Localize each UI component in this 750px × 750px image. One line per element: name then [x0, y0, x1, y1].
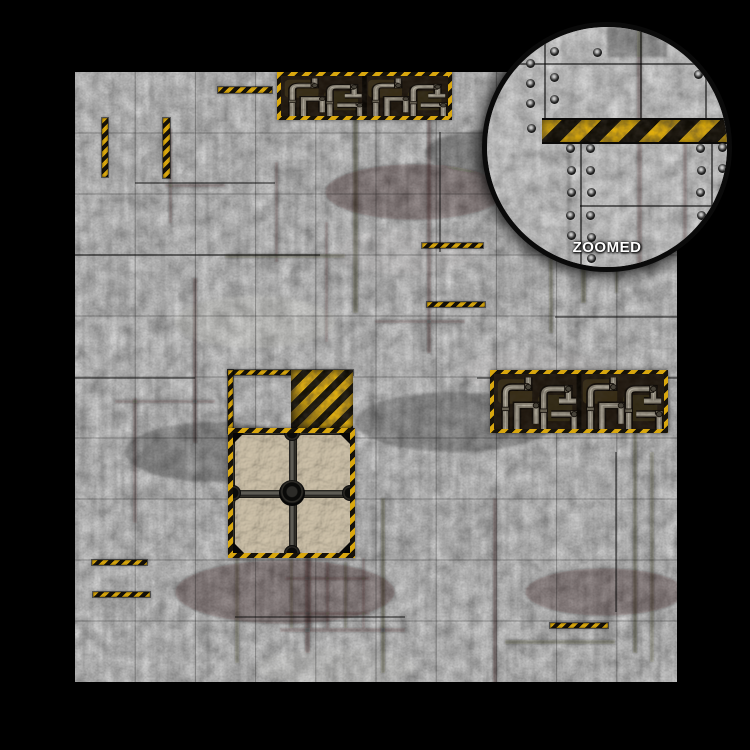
- rivet-icon: [716, 51, 725, 60]
- hazard-chevron-plate: [291, 370, 353, 433]
- rivet-icon: [527, 124, 536, 133]
- plate-seam: [487, 63, 727, 65]
- plate-seam: [705, 27, 707, 118]
- hazard-strip: [92, 560, 147, 565]
- rivet-icon: [550, 95, 559, 104]
- rivet-icon: [526, 59, 535, 68]
- rivet-icon: [696, 144, 705, 153]
- supply-crate: [228, 428, 355, 558]
- crate-corner: [339, 433, 350, 444]
- rivet-icon: [586, 144, 595, 153]
- rivet-icon: [567, 166, 576, 175]
- rivet-icon: [526, 99, 535, 108]
- product-photo: ZOOMED: [0, 0, 750, 750]
- rivet-icon: [697, 211, 706, 220]
- hazard-strip: [228, 370, 233, 433]
- rivet-icon: [550, 73, 559, 82]
- pipe-panel-interior: [281, 76, 448, 116]
- hazard-band: [542, 118, 727, 144]
- rivet-icon: [586, 211, 595, 220]
- rivet-icon: [587, 188, 596, 197]
- rivet-icon: [566, 144, 575, 153]
- hazard-strip: [163, 118, 170, 178]
- hazard-strip: [93, 592, 150, 597]
- rivet-icon: [526, 79, 535, 88]
- hazard-strip: [550, 623, 608, 628]
- rivet-icon: [550, 47, 559, 56]
- zoom-inset: ZOOMED: [482, 22, 732, 272]
- rivet-icon: [696, 188, 705, 197]
- pipe-panel-interior: [494, 374, 664, 429]
- rivet-icon: [567, 188, 576, 197]
- hazard-strip: [427, 302, 485, 307]
- rivet-icon: [697, 166, 706, 175]
- rivet-icon: [586, 166, 595, 175]
- zoom-label: ZOOMED: [487, 239, 727, 256]
- rivet-icon: [718, 143, 727, 152]
- crate-corner: [339, 542, 350, 553]
- plate-seam: [544, 27, 546, 118]
- hazard-strip: [422, 243, 483, 248]
- rivet-icon: [593, 48, 602, 57]
- crate-corner: [233, 433, 244, 444]
- rivet-icon: [566, 211, 575, 220]
- rivet-icon: [715, 75, 724, 84]
- pipe-conduit-panel-right: [490, 370, 668, 433]
- rivet-icon: [694, 70, 703, 79]
- crate-corner: [233, 542, 244, 553]
- rivet-icon: [693, 47, 702, 56]
- rivet-icon: [719, 188, 728, 197]
- crate-center-hub: [279, 480, 305, 506]
- rivet-icon: [718, 164, 727, 173]
- plate-seam: [580, 205, 727, 207]
- plate-seam: [640, 27, 642, 118]
- hazard-strip: [102, 118, 108, 177]
- hazard-strip: [218, 87, 272, 93]
- pipe-conduit-panel-top: [277, 72, 452, 120]
- crate-frame: [233, 433, 350, 553]
